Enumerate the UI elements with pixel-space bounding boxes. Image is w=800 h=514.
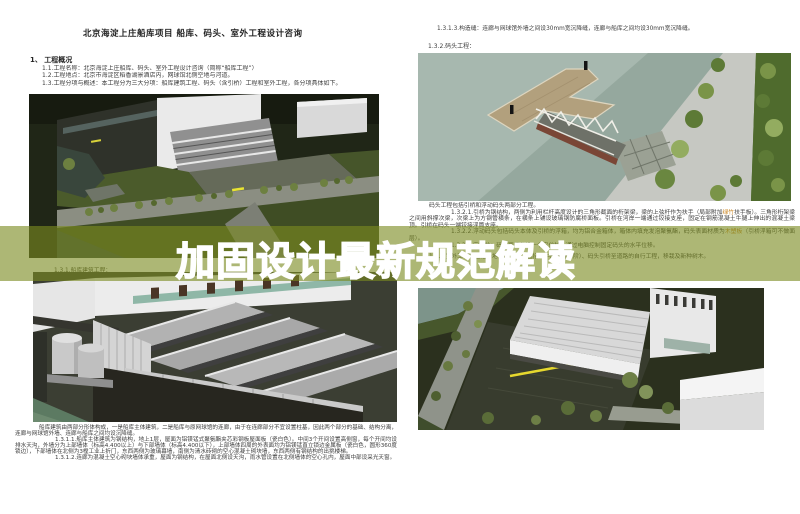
document-page: 北京海淀上庄船库项目 船库、码头、室外工程设计咨询 1、 工程概况 1.1.工程… [0,0,800,514]
joint-note: 1.3.1.3.构造缝：连廊与网球馆外墙之间设30mm宽沉降缝，连廊与船库之间均… [437,23,792,32]
rendering-boathouse-closeup [33,272,397,422]
banner-title: 加固设计最新规范解读 [176,231,576,287]
overview-item: 1.1.工程名称：北京海淀上庄船库、码头、室外工程设计咨询（简称“船库工程”） [42,65,387,72]
boathouse-paragraph: 1.3.1.2.连廊为混凝土空心砌块墙体承重，屋面为钢结构，在屋面北侧设天沟，雨… [15,455,397,461]
boathouse-text-block: 船库建筑由两部分形体构成，一是船库主体建筑，二是船库与原网球馆的连廊，由于在连廊… [15,425,397,461]
rendering-site-southeast [418,288,764,430]
highlight-word: 绿竹 [723,210,735,216]
page-title: 北京海淀上庄船库项目 船库、码头、室外工程设计咨询 [83,27,302,39]
wharf-heading: 1.3.2.码头工程： [428,41,475,50]
overview-item: 1.2.工程地点：北京市海淀区稻香湖景酒店内，网球馆北侧空地与河道。 [42,72,387,79]
rendering-dock-bridge [418,53,791,201]
overview-item: 1.3.工程分项与概述：本工程分为三大分项：船库建筑工程、码头（含引桥）工程和室… [42,80,387,87]
overview-items: 1.1.工程名称：北京海淀上庄船库、码头、室外工程设计咨询（简称“船库工程”） … [42,65,387,87]
boathouse-paragraph: 船库建筑由两部分形体构成，一是船库主体建筑，二是船库与原网球馆的连廊，由于在连廊… [15,425,397,437]
headline-banner: 加固设计最新规范解读 [0,226,800,281]
section-overview-heading: 1、 工程概况 [30,55,72,65]
boathouse-paragraph: 1.3.1.1.船库主体建筑为钢结构，地上1层，屋面为铝镁锰式聚氨酯夹芯彩钢板屋… [15,437,397,455]
wharf-intro: 码头工程包括引桥和浮动码头两部分工程。 [409,203,795,210]
